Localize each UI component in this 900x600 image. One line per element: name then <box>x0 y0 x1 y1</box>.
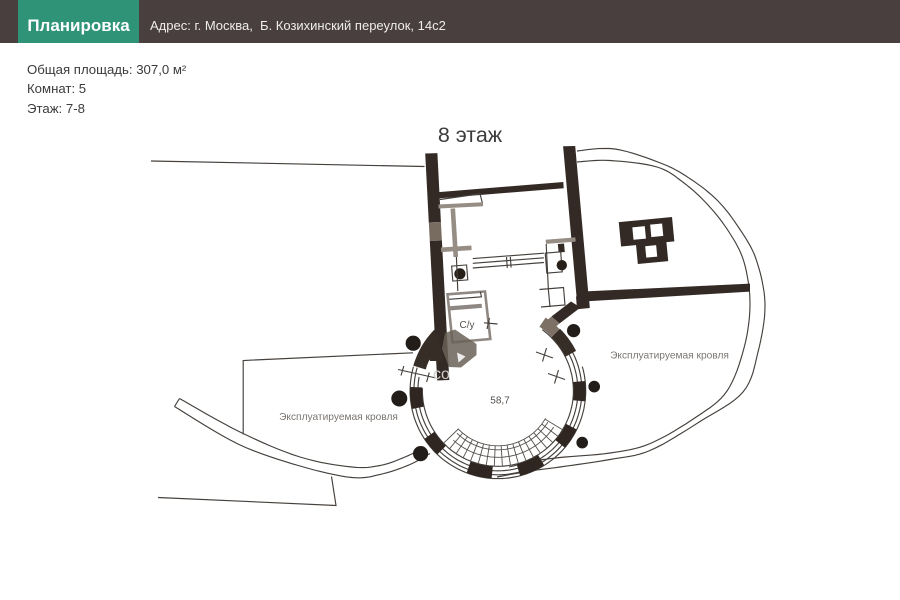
svg-text:Эксплуатируемая кровля: Эксплуатируемая кровля <box>279 412 398 423</box>
svg-text:Эксплуатируемая кровля: Эксплуатируемая кровля <box>610 351 729 362</box>
svg-text:С/у: С/у <box>460 320 475 331</box>
svg-text:co: co <box>433 366 450 383</box>
svg-text:58,7: 58,7 <box>490 396 510 407</box>
